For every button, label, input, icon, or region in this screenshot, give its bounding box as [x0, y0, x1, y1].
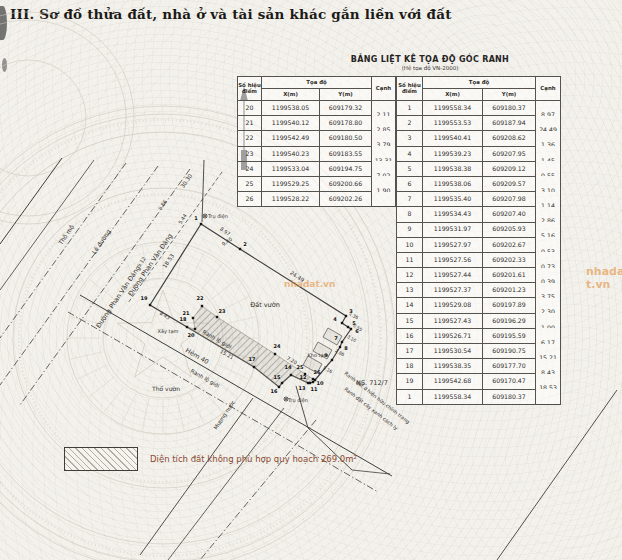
point-id: 6 — [397, 176, 423, 191]
table-row: 251199529.25609200.661.90 — [238, 176, 396, 191]
map-label: Đất vườn — [250, 301, 280, 309]
coord-x: 1199538.35 — [423, 359, 483, 374]
point-id: 15 — [397, 313, 423, 328]
parcel-point — [274, 353, 276, 355]
coord-x: 1199527.37 — [423, 283, 483, 298]
coord-x: 1199558.34 — [423, 389, 483, 404]
point-id: 3 — [397, 131, 423, 146]
parcel-point — [347, 326, 349, 328]
parcel-point — [304, 373, 306, 375]
parcel-point — [281, 382, 283, 384]
coord-y: 609190.75 — [483, 344, 536, 359]
table-row: 181199538.35609177.708.43 — [397, 359, 561, 374]
parcel-point-label: 2 — [243, 241, 247, 247]
map-label: Thổ mộ — [56, 223, 76, 247]
map-label: 3.10 — [346, 334, 357, 343]
edge-length: 2.85 — [372, 116, 396, 131]
map-label: Trụ điện — [287, 397, 308, 403]
table-row: 51199538.38609209.120.55 — [397, 161, 561, 176]
legend: Diện tích đất không phù hợp quy hoạch 26… — [64, 447, 357, 471]
table-row: 171199530.54609190.7515.21 — [397, 344, 561, 359]
parcel-point — [290, 374, 292, 376]
edge-length: 0.53 — [536, 237, 561, 252]
point-id: 2 — [397, 116, 423, 131]
emblem-spoke — [190, 394, 204, 424]
table-row: 261199528.22609202.26 — [238, 192, 396, 207]
coord-x: 1199538.05 — [262, 101, 320, 116]
coord-x: 1199542.68 — [423, 374, 483, 389]
coord-y: 609207.95 — [483, 146, 536, 161]
ditch-line — [168, 408, 284, 560]
coord-y: 609177.70 — [483, 359, 536, 374]
coord-x: 1199539.23 — [423, 146, 483, 161]
emblem-spoke — [77, 297, 107, 311]
parcel-point — [216, 316, 218, 318]
edge-length: 1.14 — [536, 192, 561, 207]
point-id: 20 — [238, 101, 262, 116]
parcel-point — [200, 223, 202, 225]
parcel-point-label: 15 — [274, 374, 281, 380]
point-id: 10 — [397, 237, 423, 252]
emblem-spoke — [70, 352, 102, 359]
parcel-point-label: 1 — [194, 215, 198, 221]
edge-length: 18.53 — [536, 374, 561, 389]
table-row: 71199535.40609207.981.14 — [397, 192, 561, 207]
coord-x: 1199533.04 — [262, 161, 320, 176]
column-header: Y(m) — [483, 89, 536, 101]
map-label: 9.86 — [157, 199, 168, 212]
emblem-spoke — [223, 317, 255, 324]
column-header: Cạnh — [536, 77, 561, 101]
map-label: 8.97 — [219, 226, 232, 237]
table-row: 31199540.41609208.621.36 — [397, 131, 561, 146]
emblem-spoke — [190, 252, 204, 282]
parcel-point — [341, 341, 343, 343]
parcel-point-label: 13 — [299, 385, 306, 391]
parcel-point-label: 18 — [180, 316, 187, 322]
parcel-point — [253, 366, 255, 368]
coord-x: 1199558.34 — [423, 101, 483, 116]
point-id: 18 — [397, 359, 423, 374]
table-row: 11199558.34609180.378.97 — [397, 101, 561, 116]
boundary-line — [497, 390, 617, 560]
column-header: Tọa độ — [423, 77, 536, 89]
parcel-point-label: 7 — [334, 335, 338, 341]
map-label: Trụ điện — [207, 213, 228, 219]
point-id: 22 — [238, 131, 262, 146]
coord-y: 609202.26 — [320, 192, 372, 207]
point-id: 17 — [397, 344, 423, 359]
edge-length: 2.30 — [536, 298, 561, 313]
point-id: 25 — [238, 176, 262, 191]
emblem-ring — [0, 12, 134, 224]
table-row: 141199529.08609197.892.30 — [397, 298, 561, 313]
coord-x: 1199529.08 — [423, 298, 483, 313]
map-label: Thổ vườn — [151, 385, 180, 392]
parcel-point — [278, 386, 280, 388]
table-row: 41199539.23609207.951.45 — [397, 146, 561, 161]
edge-length: 3.79 — [372, 131, 396, 146]
coord-y: 609197.89 — [483, 298, 536, 313]
table-row: 111199527.56609202.330.73 — [397, 252, 561, 267]
parcel-point-label: 22 — [197, 295, 204, 301]
parcel-point-label: 19 — [141, 295, 148, 301]
coord-y: 609207.98 — [483, 192, 536, 207]
emblem-ring — [0, 60, 86, 176]
map-label: Mương nước — [212, 399, 237, 431]
parcel-point — [341, 322, 343, 324]
coord-y: 609187.94 — [483, 116, 536, 131]
table-row: 121199527.44609201.610.39 — [397, 268, 561, 283]
coord-y: 609180.50 — [320, 131, 372, 146]
parcel-point — [307, 382, 309, 384]
ditch-line — [140, 398, 253, 555]
coord-y: 609209.57 — [483, 176, 536, 191]
coord-y: 609209.12 — [483, 161, 536, 176]
coord-x: 1199540.41 — [423, 131, 483, 146]
edge-length: 8.97 — [536, 101, 561, 116]
edge-length: 1.90 — [372, 176, 396, 191]
parcel-point — [350, 328, 352, 330]
parcel-point-label: 11 — [311, 386, 318, 392]
legend-hatch-swatch — [64, 447, 138, 471]
parcel-point — [339, 346, 341, 348]
point-id: 19 — [397, 374, 423, 389]
parcel-point-label: 23 — [219, 308, 226, 314]
parcel-point-label: 25 — [297, 364, 304, 370]
emblem-spoke — [142, 398, 149, 430]
map-label: Ranh lộ giới — [189, 368, 221, 390]
coord-y: 609201.61 — [483, 268, 536, 283]
edge-length: 0.73 — [536, 252, 561, 267]
edge-length: 7.02 — [372, 161, 396, 176]
coord-x: 1199529.25 — [262, 176, 320, 191]
table-row: 221199542.49609180.503.79 — [238, 131, 396, 146]
coord-x: 1199528.22 — [262, 192, 320, 207]
table-row: 241199533.04609194.757.02 — [238, 161, 396, 176]
parcel-point — [201, 305, 203, 307]
emblem-spoke — [177, 398, 184, 430]
coord-x: 1199527.56 — [423, 252, 483, 267]
emblem-spoke — [89, 279, 115, 300]
coord-y: 609207.40 — [483, 207, 536, 222]
map-label: 18.53 — [161, 252, 175, 269]
edge-length: 3.75 — [536, 283, 561, 298]
table-row: 191199542.68609170.4718.53 — [397, 374, 561, 389]
coord-y: 609180.37 — [483, 101, 536, 116]
table-row: 201199538.05609179.322.11 — [238, 101, 396, 116]
point-id: 13 — [397, 283, 423, 298]
parcel-point-label: 17 — [249, 356, 256, 362]
table-row: 91199531.97609205.935.16 — [397, 222, 561, 237]
coord-x: 1199534.43 — [423, 207, 483, 222]
point-id: 4 — [397, 146, 423, 161]
edge-length: 15.21 — [536, 344, 561, 359]
point-id: 7 — [397, 192, 423, 207]
parcel-point — [312, 378, 314, 380]
emblem-ring — [13, 188, 313, 488]
coord-x: 1199538.06 — [423, 176, 483, 191]
edge-length: 1.36 — [536, 131, 561, 146]
edge-length: 0.39 — [536, 268, 561, 283]
emblem-spoke — [104, 386, 125, 412]
emblem-spoke — [219, 365, 249, 379]
map-label: 5.16 — [322, 365, 333, 374]
coord-x: 1199526.71 — [423, 328, 483, 343]
coord-y: 609178.80 — [320, 116, 372, 131]
parcel-point-label: 4 — [333, 316, 337, 322]
map-label: 8.43 — [159, 310, 172, 321]
edge-length: 13.31 — [372, 146, 396, 161]
table-row: 161199526.71609195.596.17 — [397, 328, 561, 343]
column-header: Cạnh — [372, 77, 396, 101]
edge-length — [372, 192, 396, 207]
map-label: Xây tạm — [158, 328, 179, 335]
table-row: 81199534.43609207.402.86 — [397, 207, 561, 222]
point-id: 16 — [397, 328, 423, 343]
table-row: 211199540.12609178.802.85 — [238, 116, 396, 131]
coord-y: 609208.62 — [483, 131, 536, 146]
coord-y: 609202.67 — [483, 237, 536, 252]
parcel-point-label: 10 — [317, 380, 324, 386]
parcel-point — [312, 381, 314, 383]
table-row: 101199527.97609202.670.53 — [397, 237, 561, 252]
emblem-spoke — [202, 264, 223, 290]
point-id: 24 — [238, 161, 262, 176]
parcel-point — [345, 315, 347, 317]
parcel-point-label: 26 — [314, 369, 321, 375]
point-id: 1 — [397, 389, 423, 404]
coord-x: 1199538.38 — [423, 161, 483, 176]
parcel-point-label: 14 — [285, 364, 292, 370]
table-row: 61199538.06609209.573.10 — [397, 176, 561, 191]
point-id: 11 — [397, 252, 423, 267]
table-row: 21199553.53609187.9424.49 — [397, 116, 561, 131]
parcel-point-label: 16 — [271, 388, 278, 394]
point-id: 21 — [238, 116, 262, 131]
edge-length: 24.49 — [536, 116, 561, 131]
house — [323, 328, 342, 345]
edge-length: 3.10 — [536, 176, 561, 191]
coord-y: 609183.55 — [320, 146, 372, 161]
parcel-point-label: 24 — [274, 343, 281, 349]
coord-x: 1199553.53 — [423, 116, 483, 131]
coord-x: 1199527.97 — [423, 237, 483, 252]
map-label: 5.44 — [177, 213, 188, 226]
table-row: 151199527.43609196.291.00 — [397, 313, 561, 328]
emblem-spoke — [89, 377, 115, 398]
column-header: Tọa độ — [262, 77, 372, 89]
point-id: 9 — [397, 222, 423, 237]
edge-length — [536, 389, 561, 404]
point-id: 14 — [397, 298, 423, 313]
parcel-point — [149, 304, 151, 306]
table-row: 231199540.23609183.5513.31 — [238, 146, 396, 161]
coord-x: 1199527.43 — [423, 313, 483, 328]
point-id: 8 — [397, 207, 423, 222]
parcel-point — [194, 328, 196, 330]
coord-y: 609194.75 — [320, 161, 372, 176]
parcel-point — [192, 317, 194, 319]
coord-y: 609170.47 — [483, 374, 536, 389]
map-label: Kho tạm — [308, 352, 329, 358]
edge-length: 6.17 — [536, 328, 561, 343]
column-header: X(m) — [262, 89, 320, 101]
table-title: BẢNG LIỆT KÊ TỌA ĐỘ GÓC RANH — [298, 55, 562, 64]
coord-y: 609195.59 — [483, 328, 536, 343]
ditch-line — [200, 420, 316, 560]
coord-x: 1199531.97 — [423, 222, 483, 237]
coord-y: 609179.32 — [320, 101, 372, 116]
point-id: 5 — [397, 161, 423, 176]
legend-label: Diện tích đất không phù hợp quy hoạch 26… — [150, 454, 357, 464]
point-id: 1 — [397, 101, 423, 116]
land-certificate-page: III. Sơ đồ thửa đất, nhà ở và tài sản kh… — [0, 0, 622, 560]
edge-length: 1.00 — [536, 313, 561, 328]
coordinate-table-left: Số hiệu điểmTọa độCạnhX(m)Y(m)201199538.… — [237, 76, 396, 207]
parcel-point-label: 21 — [183, 310, 190, 316]
coord-y: 609202.33 — [483, 252, 536, 267]
coord-y: 609200.66 — [320, 176, 372, 191]
coord-x: 1199540.23 — [262, 146, 320, 161]
edge-length: 1.45 — [536, 146, 561, 161]
parcel-point — [331, 359, 333, 361]
parcel-point-label: 20 — [188, 332, 195, 338]
edge-length: 5.16 — [536, 222, 561, 237]
edge-length: 8.43 — [536, 359, 561, 374]
table-row: 11199558.34609180.37 — [397, 389, 561, 404]
coord-y: 609201.23 — [483, 283, 536, 298]
leader-line — [202, 160, 204, 222]
table-row: 131199527.37609201.233.75 — [397, 283, 561, 298]
emblem-spoke — [122, 394, 136, 424]
column-header: Số hiệu điểm — [238, 77, 262, 101]
map-label: Lề đường — [90, 228, 112, 256]
coord-x: 1199535.40 — [423, 192, 483, 207]
column-header: Số hiệu điểm — [397, 77, 423, 101]
parcel-point-label: 8 — [344, 345, 348, 351]
point-id: 23 — [238, 146, 262, 161]
coordinate-table-right: Số hiệu điểmTọa độCạnhX(m)Y(m)11199558.3… — [396, 76, 561, 405]
edge-length: 0.55 — [536, 161, 561, 176]
parcel-point — [239, 248, 241, 250]
point-id: 26 — [238, 192, 262, 207]
edge-length: 2.86 — [536, 207, 561, 222]
coord-y: 609205.93 — [483, 222, 536, 237]
emblem-ring — [0, 20, 126, 216]
point-id: 12 — [397, 268, 423, 283]
map-label: Đường Phan Văn Đáng — [94, 264, 142, 329]
emblem-spoke — [77, 365, 107, 379]
column-header: Y(m) — [320, 89, 372, 101]
column-header: X(m) — [423, 89, 483, 101]
table-subtitle: (Hệ tọa độ VN-2000) — [298, 65, 562, 71]
parcel-point — [186, 326, 188, 328]
edge-length: 2.11 — [372, 101, 396, 116]
coord-x: 1199530.54 — [423, 344, 483, 359]
coord-x: 1199527.44 — [423, 268, 483, 283]
coord-x: 1199542.49 — [262, 131, 320, 146]
coord-x: 1199540.12 — [262, 116, 320, 131]
emblem-spoke — [211, 279, 237, 300]
coord-y: 609180.37 — [483, 389, 536, 404]
coord-y: 609196.29 — [483, 313, 536, 328]
